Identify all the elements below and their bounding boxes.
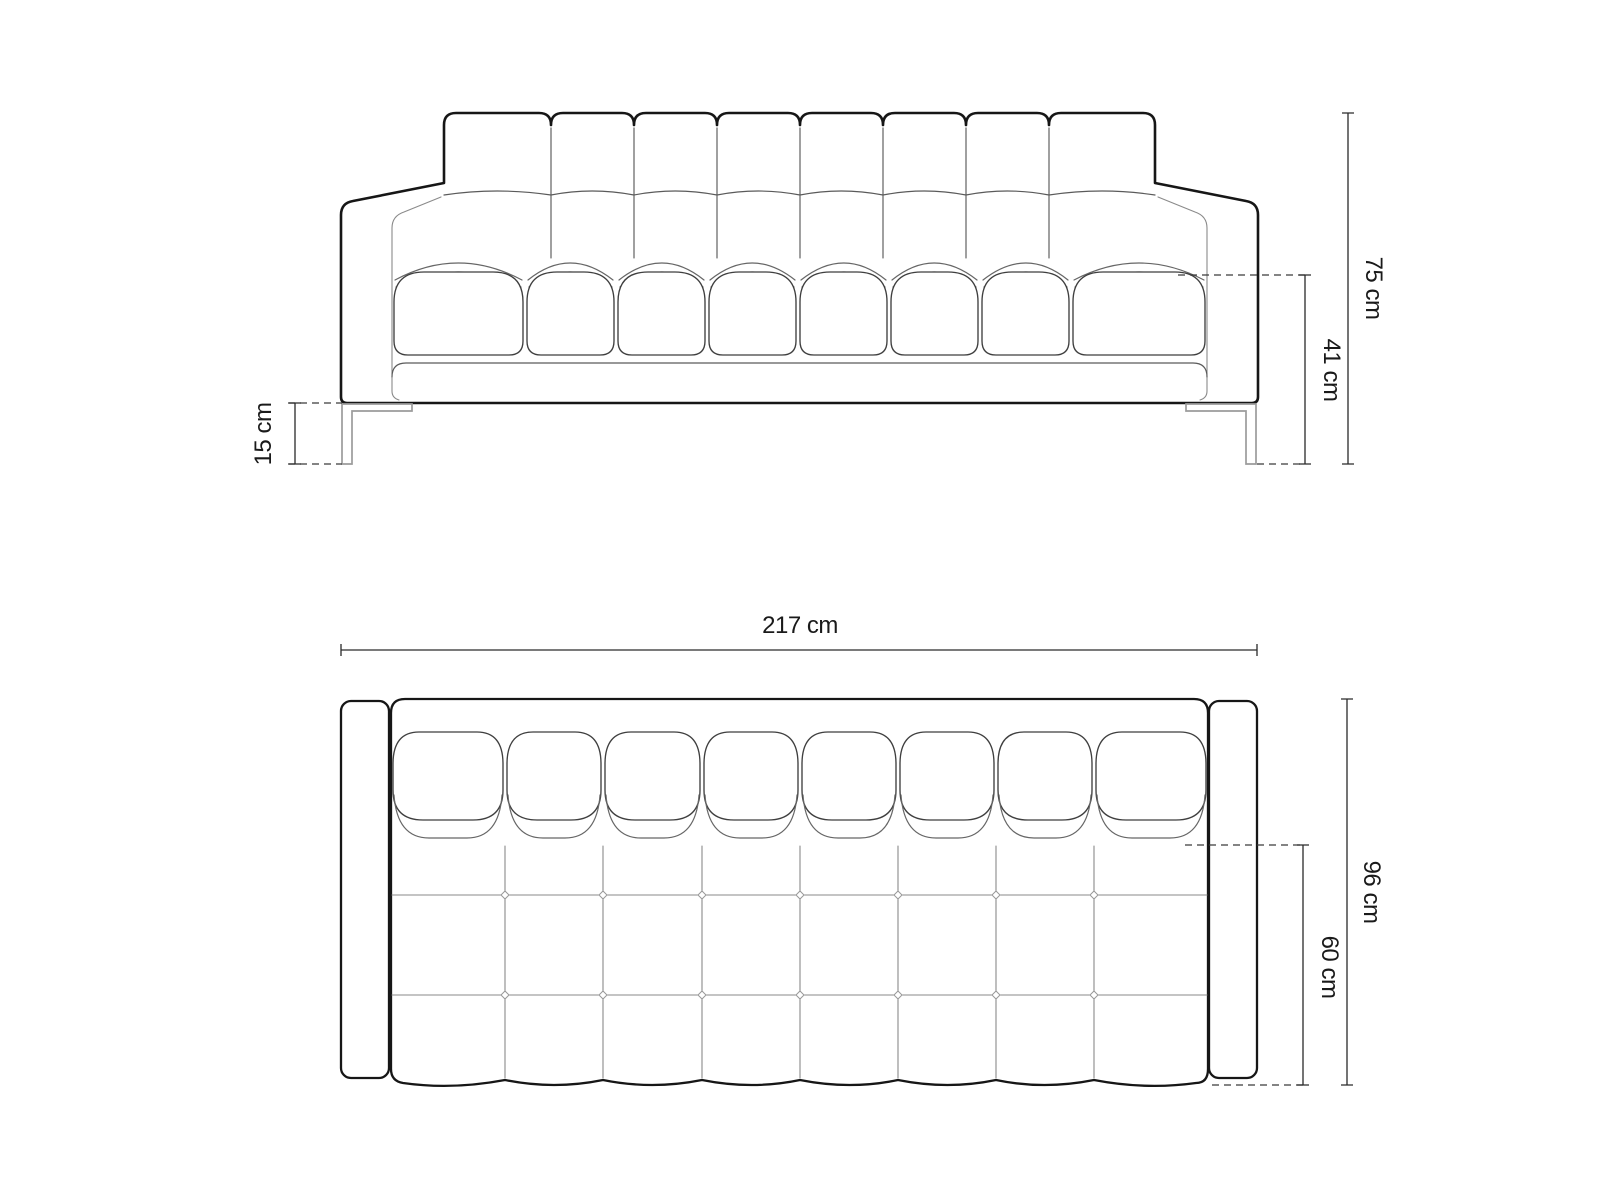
dimension-label: 217 cm xyxy=(762,612,838,639)
seat-cushion xyxy=(394,272,523,355)
back-cushion xyxy=(1096,732,1206,820)
dimension-label: 60 cm xyxy=(1316,936,1343,999)
dimension-line xyxy=(341,644,1257,656)
back-cushion xyxy=(393,732,503,820)
back-cushion xyxy=(802,732,896,820)
dimension-line xyxy=(1342,113,1354,464)
top-right-armrest xyxy=(1209,701,1257,1078)
dimension-label: 41 cm xyxy=(1318,339,1345,402)
dimension-line xyxy=(1341,699,1353,1085)
seat-cushion xyxy=(1073,272,1205,355)
seat-cushion xyxy=(618,272,705,355)
sofa-dimension-diagram: 75 cm 41 cm 15 cm xyxy=(0,0,1600,1200)
back-cushion xyxy=(704,732,798,820)
dimension-label: 15 cm xyxy=(250,403,277,466)
back-cushion xyxy=(605,732,700,820)
seat-cushion xyxy=(527,272,614,355)
dimension-front-height: 75 cm xyxy=(1342,113,1387,464)
top-left-armrest xyxy=(341,701,389,1078)
dimension-label: 96 cm xyxy=(1358,861,1385,924)
seat-cushion xyxy=(982,272,1069,355)
dimension-label: 75 cm xyxy=(1360,257,1387,320)
dimension-top-width: 217 cm xyxy=(341,612,1257,656)
back-cushion xyxy=(507,732,601,820)
dimension-line xyxy=(289,403,301,464)
dimension-top-depth: 96 cm xyxy=(1341,699,1385,1085)
top-view-drawing xyxy=(341,699,1257,1086)
back-cushion xyxy=(998,732,1092,820)
seat-cushion xyxy=(800,272,887,355)
front-view-drawing xyxy=(341,113,1258,464)
dimension-line xyxy=(1297,845,1309,1085)
front-left-leg xyxy=(342,404,412,464)
seat-cushion xyxy=(891,272,978,355)
front-right-leg xyxy=(1186,404,1256,464)
diagram-canvas: 75 cm 41 cm 15 cm xyxy=(0,0,1600,1200)
extension-line xyxy=(288,403,342,464)
dimension-front-leg-height: 15 cm xyxy=(250,403,342,466)
dimension-line xyxy=(1299,275,1311,464)
back-cushion xyxy=(900,732,994,820)
seat-cushion xyxy=(709,272,796,355)
